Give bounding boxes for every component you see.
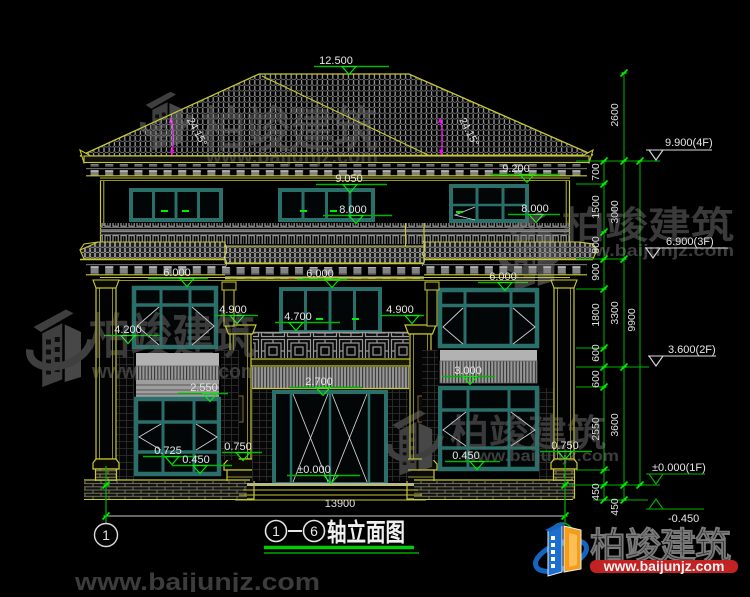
svg-text:8.000: 8.000: [521, 203, 549, 215]
svg-text:12.500: 12.500: [319, 55, 353, 67]
svg-text:450: 450: [590, 483, 602, 501]
svg-text:柏竣建筑: 柏竣建筑: [562, 204, 734, 246]
svg-text:4.700: 4.700: [284, 311, 312, 323]
svg-text:6.000: 6.000: [163, 267, 191, 279]
svg-text:700: 700: [590, 163, 602, 181]
svg-text:www.baijunjz.com: www.baijunjz.com: [603, 558, 725, 574]
svg-text:9.900(4F): 9.900(4F): [665, 137, 713, 149]
svg-text:www.baijunjz.com: www.baijunjz.com: [205, 147, 378, 168]
svg-text:9.050: 9.050: [335, 173, 363, 185]
svg-text:www.baijunjz.com: www.baijunjz.com: [91, 361, 258, 383]
svg-text:柏竣建筑: 柏竣建筑: [89, 311, 255, 364]
svg-text:-0.450: -0.450: [668, 513, 699, 525]
svg-text:600: 600: [590, 370, 602, 388]
svg-text:2600: 2600: [609, 103, 621, 127]
svg-text:0.750: 0.750: [224, 441, 252, 453]
svg-text:9.200: 9.200: [502, 163, 530, 175]
svg-text:9900: 9900: [626, 308, 638, 332]
svg-text:3600: 3600: [609, 413, 621, 437]
svg-text:3.000: 3.000: [454, 365, 482, 377]
svg-text:13900: 13900: [325, 498, 356, 510]
svg-text:www.baijunjz.com: www.baijunjz.com: [462, 448, 619, 465]
svg-text:0.450: 0.450: [182, 454, 210, 466]
svg-text:±0.000: ±0.000: [297, 464, 331, 476]
svg-text:1: 1: [272, 523, 280, 539]
svg-text:600: 600: [590, 344, 602, 362]
svg-text:www.baijunjz.com: www.baijunjz.com: [563, 241, 734, 260]
svg-text:www.baijunjz.com: www.baijunjz.com: [74, 569, 320, 592]
svg-text:4.900: 4.900: [386, 304, 414, 316]
svg-text:1: 1: [102, 527, 110, 543]
svg-text:6.000: 6.000: [306, 268, 334, 280]
svg-text:2.700: 2.700: [305, 376, 333, 388]
svg-text:8.000: 8.000: [339, 204, 367, 216]
svg-text:轴立面图: 轴立面图: [327, 518, 405, 547]
svg-text:2.550: 2.550: [190, 382, 218, 394]
svg-text:450: 450: [609, 498, 621, 516]
svg-text:±0.000(1F): ±0.000(1F): [652, 462, 706, 474]
svg-text:3.600(2F): 3.600(2F): [668, 344, 716, 356]
svg-text:1800: 1800: [590, 303, 602, 327]
svg-text:900: 900: [590, 263, 602, 281]
svg-text:6: 6: [310, 523, 318, 539]
svg-text:0.725: 0.725: [154, 445, 182, 457]
svg-text:3300: 3300: [609, 301, 621, 325]
